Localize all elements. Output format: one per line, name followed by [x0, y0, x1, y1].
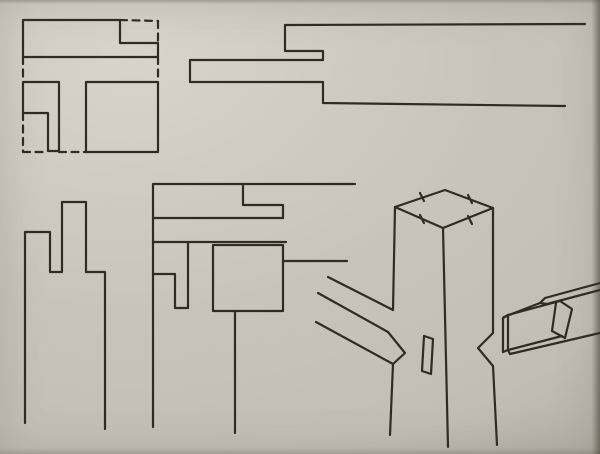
- figure-side-profile-lap-joint: [190, 24, 585, 106]
- solid-line: [493, 366, 497, 445]
- solid-line: [153, 184, 355, 427]
- solid-line: [478, 333, 493, 366]
- solid-line: [190, 24, 585, 106]
- solid-line: [552, 303, 565, 338]
- solid-line: [23, 20, 158, 57]
- solid-line: [395, 190, 493, 228]
- solid-line: [547, 290, 600, 304]
- solid-line: [153, 243, 188, 308]
- solid-line: [390, 364, 393, 435]
- solid-line: [443, 228, 448, 447]
- figure-plan-view-halved-corner-joint: [23, 20, 158, 152]
- solid-line: [318, 293, 388, 332]
- solid-line: [388, 332, 405, 364]
- solid-line: [393, 207, 395, 310]
- photographed-book-page: [0, 0, 600, 454]
- figure-end-profile-double-notch: [25, 202, 105, 429]
- figure-isometric-post-with-rails-mortise-tenon: [316, 190, 600, 447]
- solid-line: [422, 336, 433, 374]
- joinery-line-drawings: [0, 0, 600, 454]
- solid-line: [86, 82, 158, 152]
- solid-line: [545, 283, 600, 298]
- solid-line: [23, 82, 59, 151]
- solid-line: [25, 202, 105, 429]
- solid-line: [560, 301, 572, 338]
- dashed-line: [120, 20, 158, 21]
- solid-line: [213, 245, 283, 311]
- solid-line: [510, 333, 600, 354]
- solid-line: [243, 184, 283, 218]
- figure-elevation-mortise-and-tenon: [153, 184, 355, 433]
